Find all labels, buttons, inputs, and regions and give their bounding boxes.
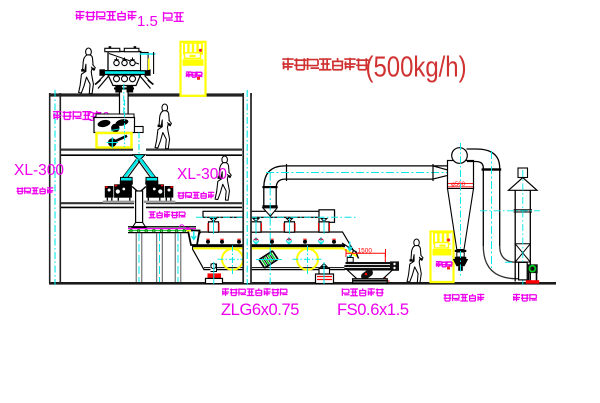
svg-text:φ500: φ500	[451, 182, 466, 188]
svg-text:XL-300: XL-300	[177, 166, 227, 183]
svg-text:XL-300: XL-300	[14, 162, 64, 179]
svg-text:(500kg/h): (500kg/h)	[366, 51, 467, 83]
svg-text:1500: 1500	[358, 247, 373, 254]
svg-text:ZLG6x0.75: ZLG6x0.75	[221, 301, 299, 319]
svg-text:1.5: 1.5	[137, 13, 158, 30]
svg-text:FS0.6x1.5: FS0.6x1.5	[337, 301, 409, 319]
